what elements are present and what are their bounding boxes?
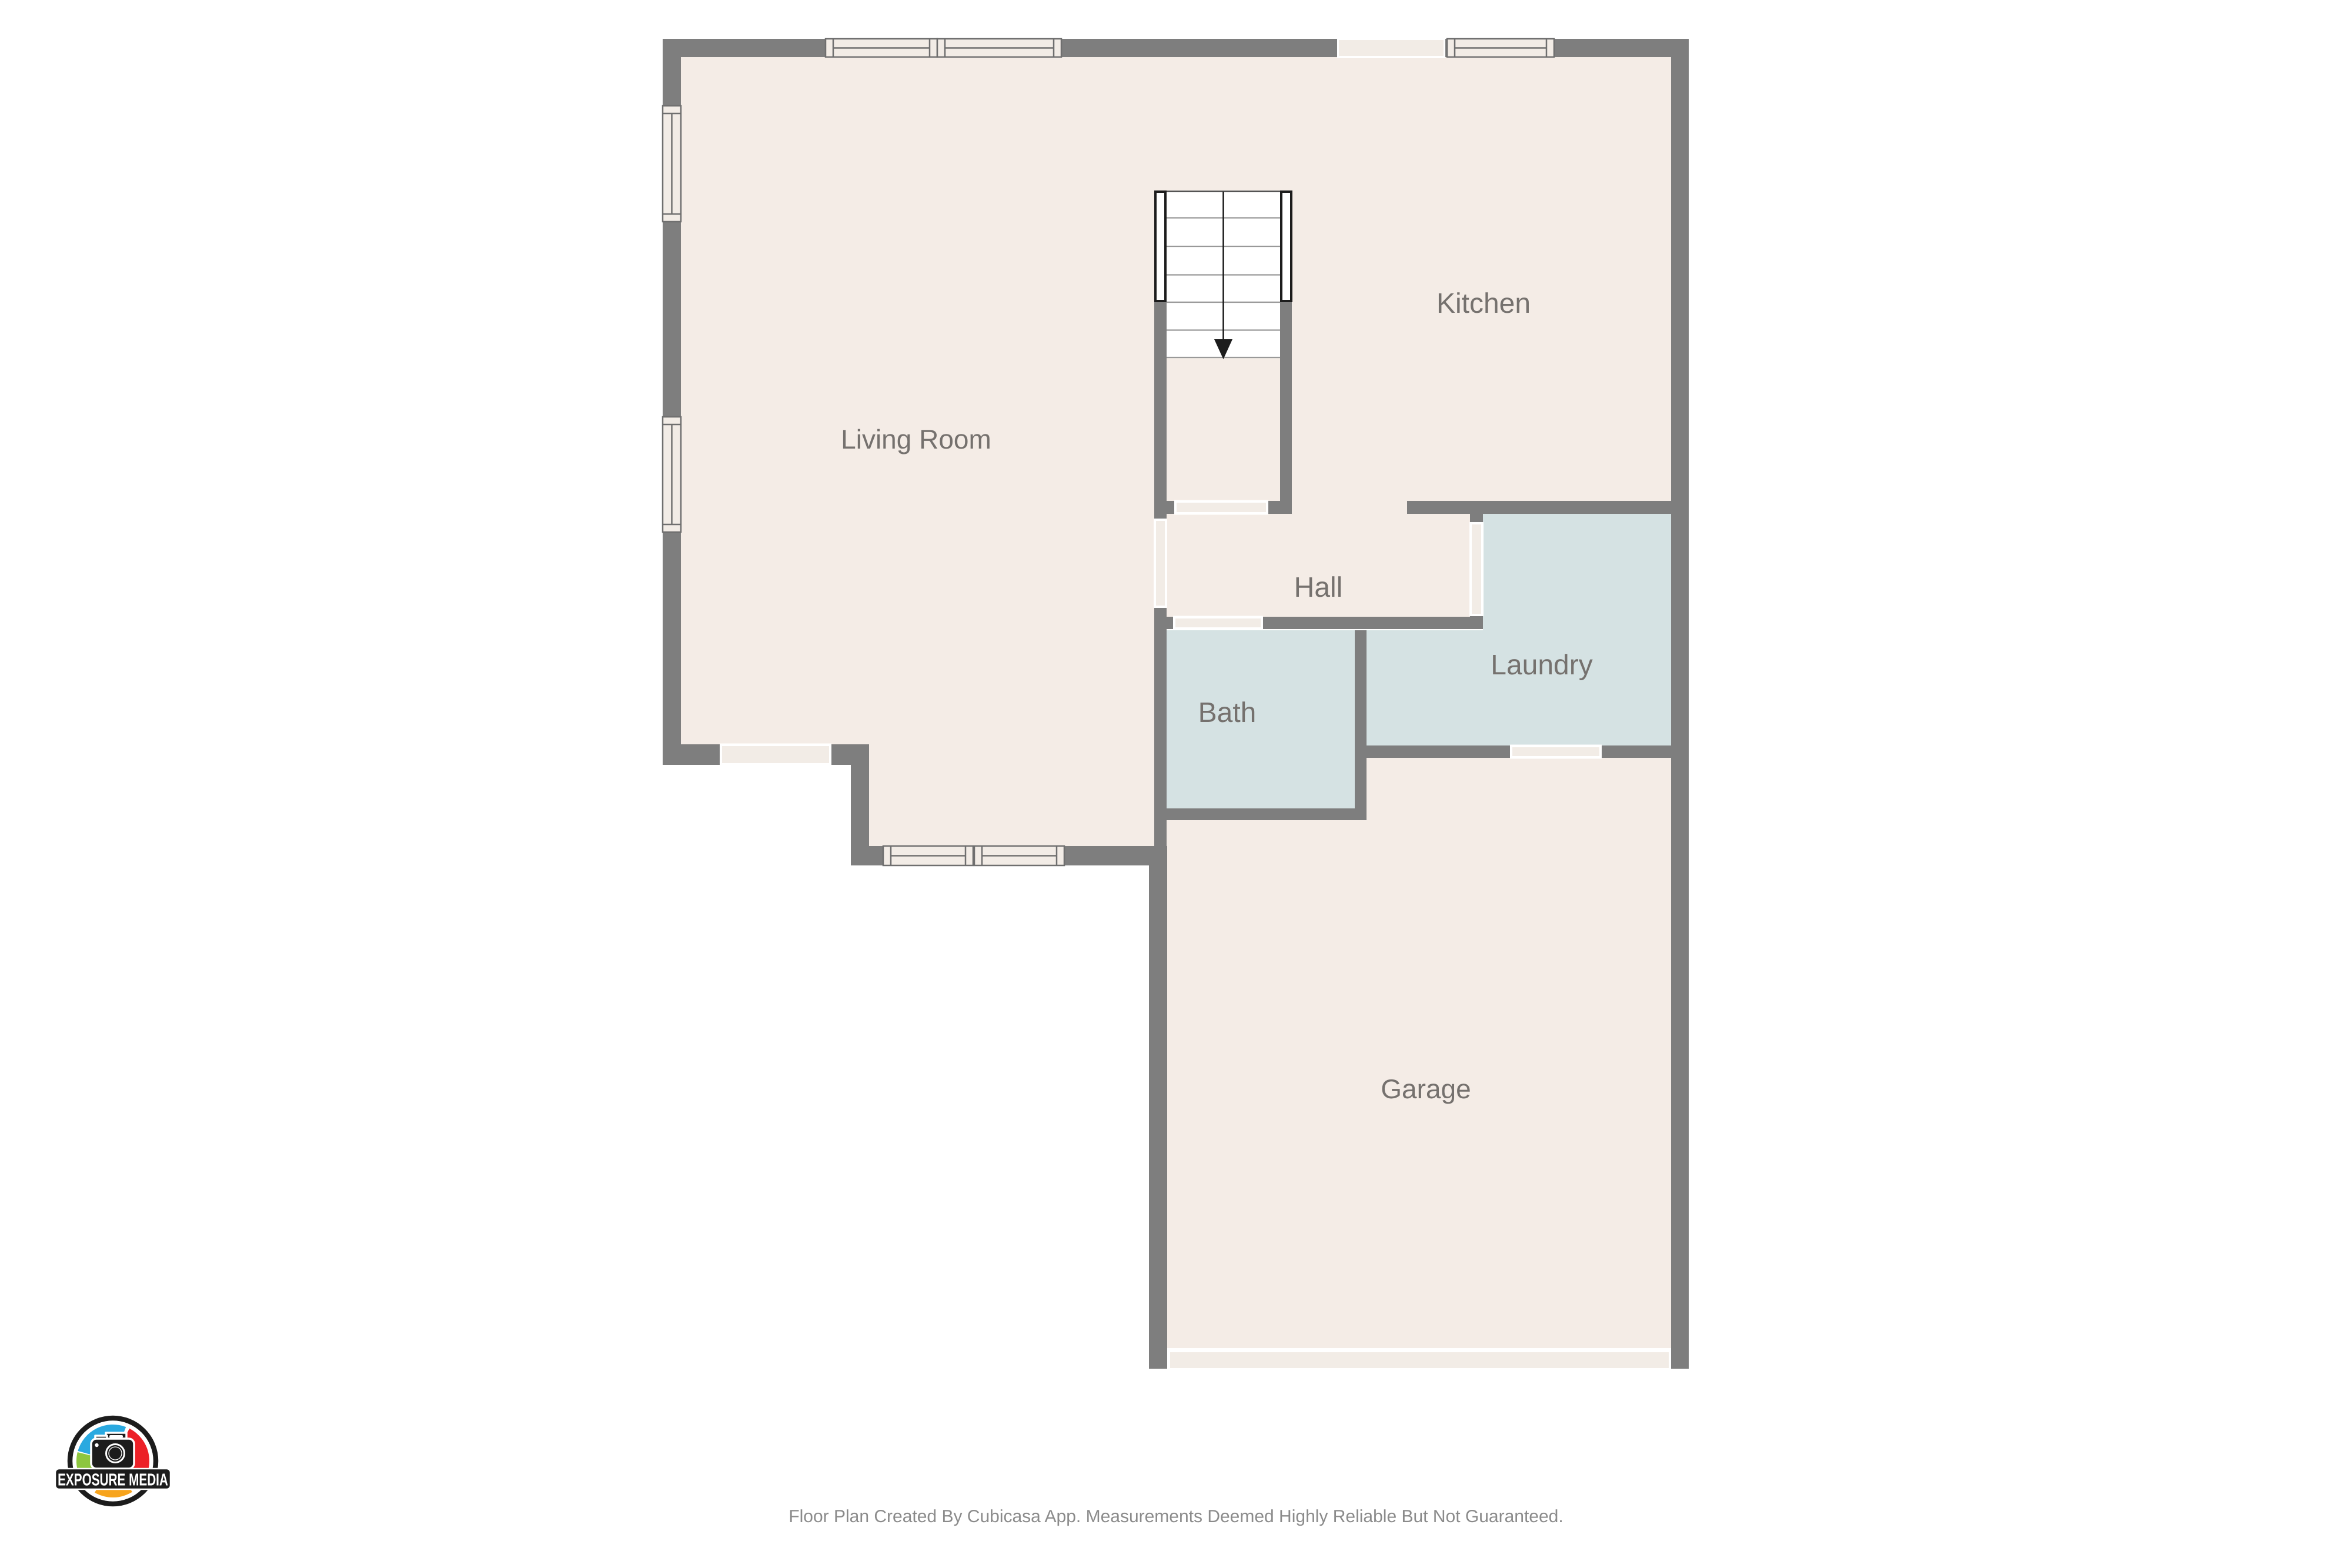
svg-text:Living Room: Living Room [841, 424, 991, 454]
svg-text:Laundry: Laundry [1491, 650, 1592, 681]
svg-text:Bath: Bath [1198, 697, 1257, 728]
svg-text:Kitchen: Kitchen [1436, 288, 1531, 319]
svg-text:Floor Plan Created By Cubicasa: Floor Plan Created By Cubicasa App. Meas… [789, 1507, 1563, 1526]
svg-text:EXPOSURE MEDIA: EXPOSURE MEDIA [58, 1471, 168, 1490]
svg-text:Garage: Garage [1381, 1074, 1471, 1104]
svg-text:Hall: Hall [1294, 572, 1343, 603]
